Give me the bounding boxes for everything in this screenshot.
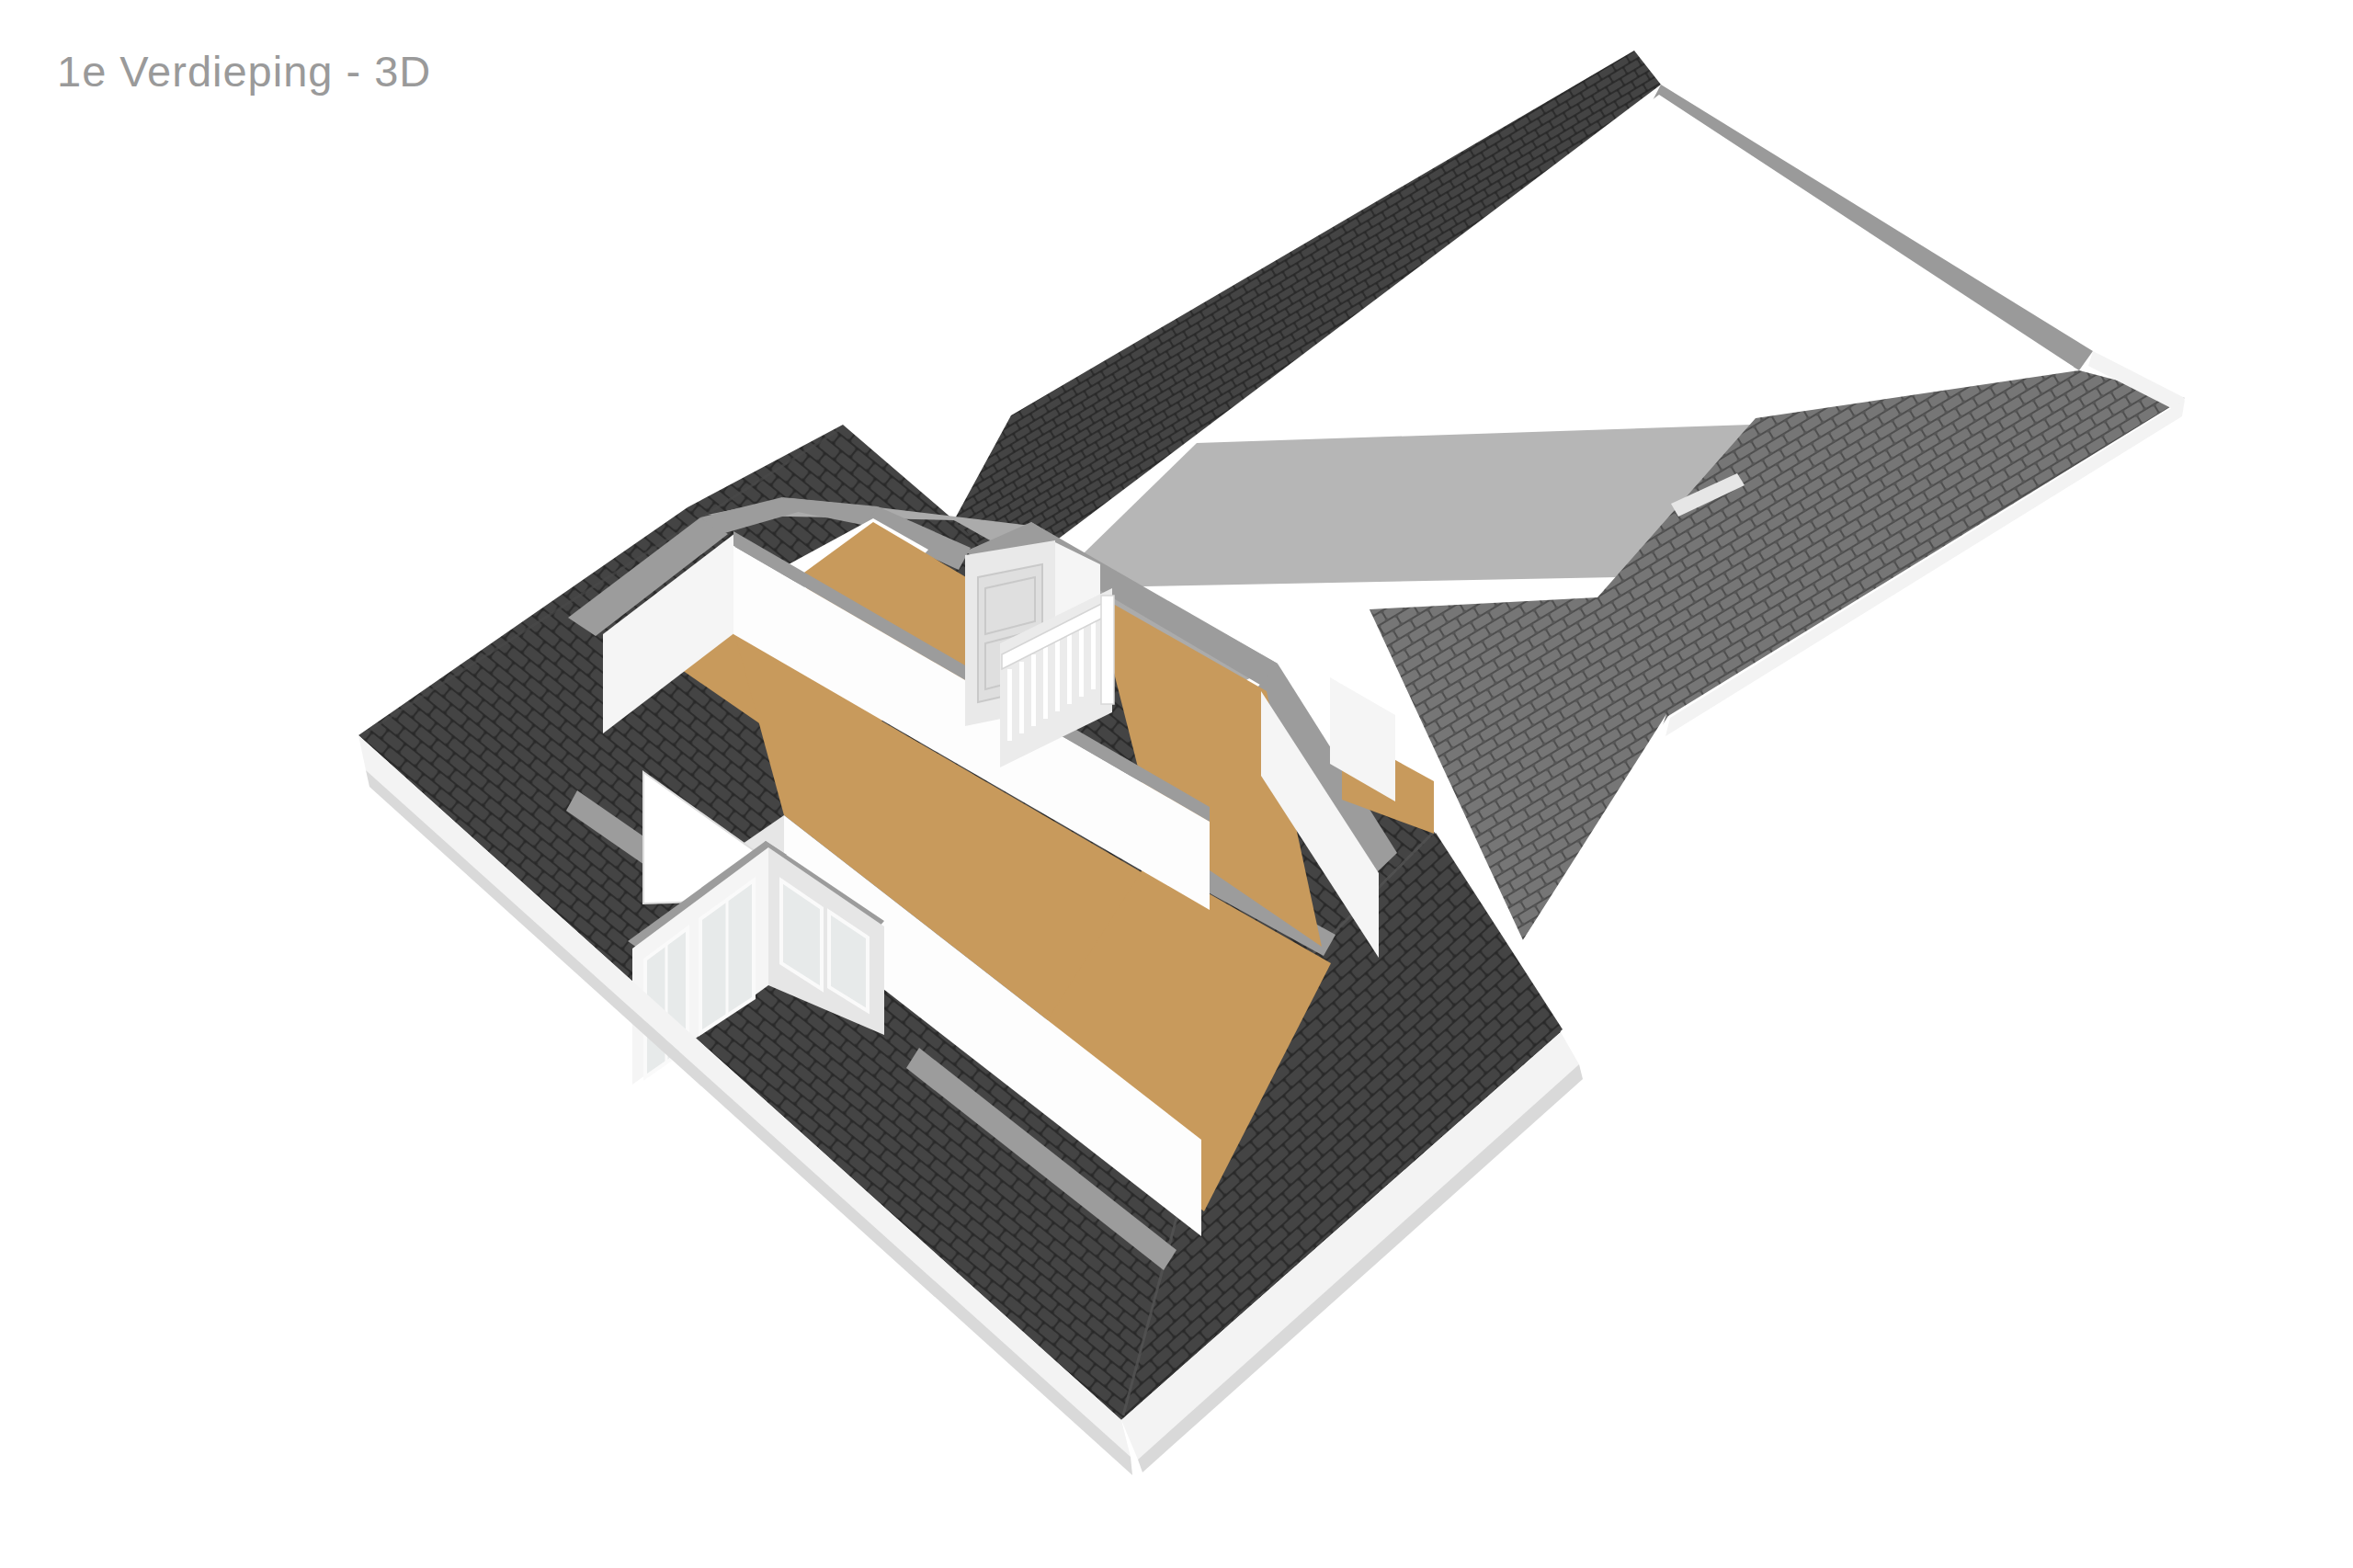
page-title: 1e Verdieping - 3D xyxy=(57,46,431,97)
newel-post xyxy=(1101,596,1114,704)
baluster xyxy=(1019,662,1024,733)
baluster xyxy=(1055,640,1060,711)
baluster xyxy=(1007,669,1012,741)
floorplan-3d-canvas xyxy=(0,0,2353,1568)
baluster xyxy=(1031,654,1036,726)
baluster xyxy=(1091,618,1096,689)
floorplan-3d-svg xyxy=(0,0,2353,1568)
baluster xyxy=(1079,625,1084,697)
baluster xyxy=(1043,647,1048,719)
baluster xyxy=(1067,632,1072,704)
